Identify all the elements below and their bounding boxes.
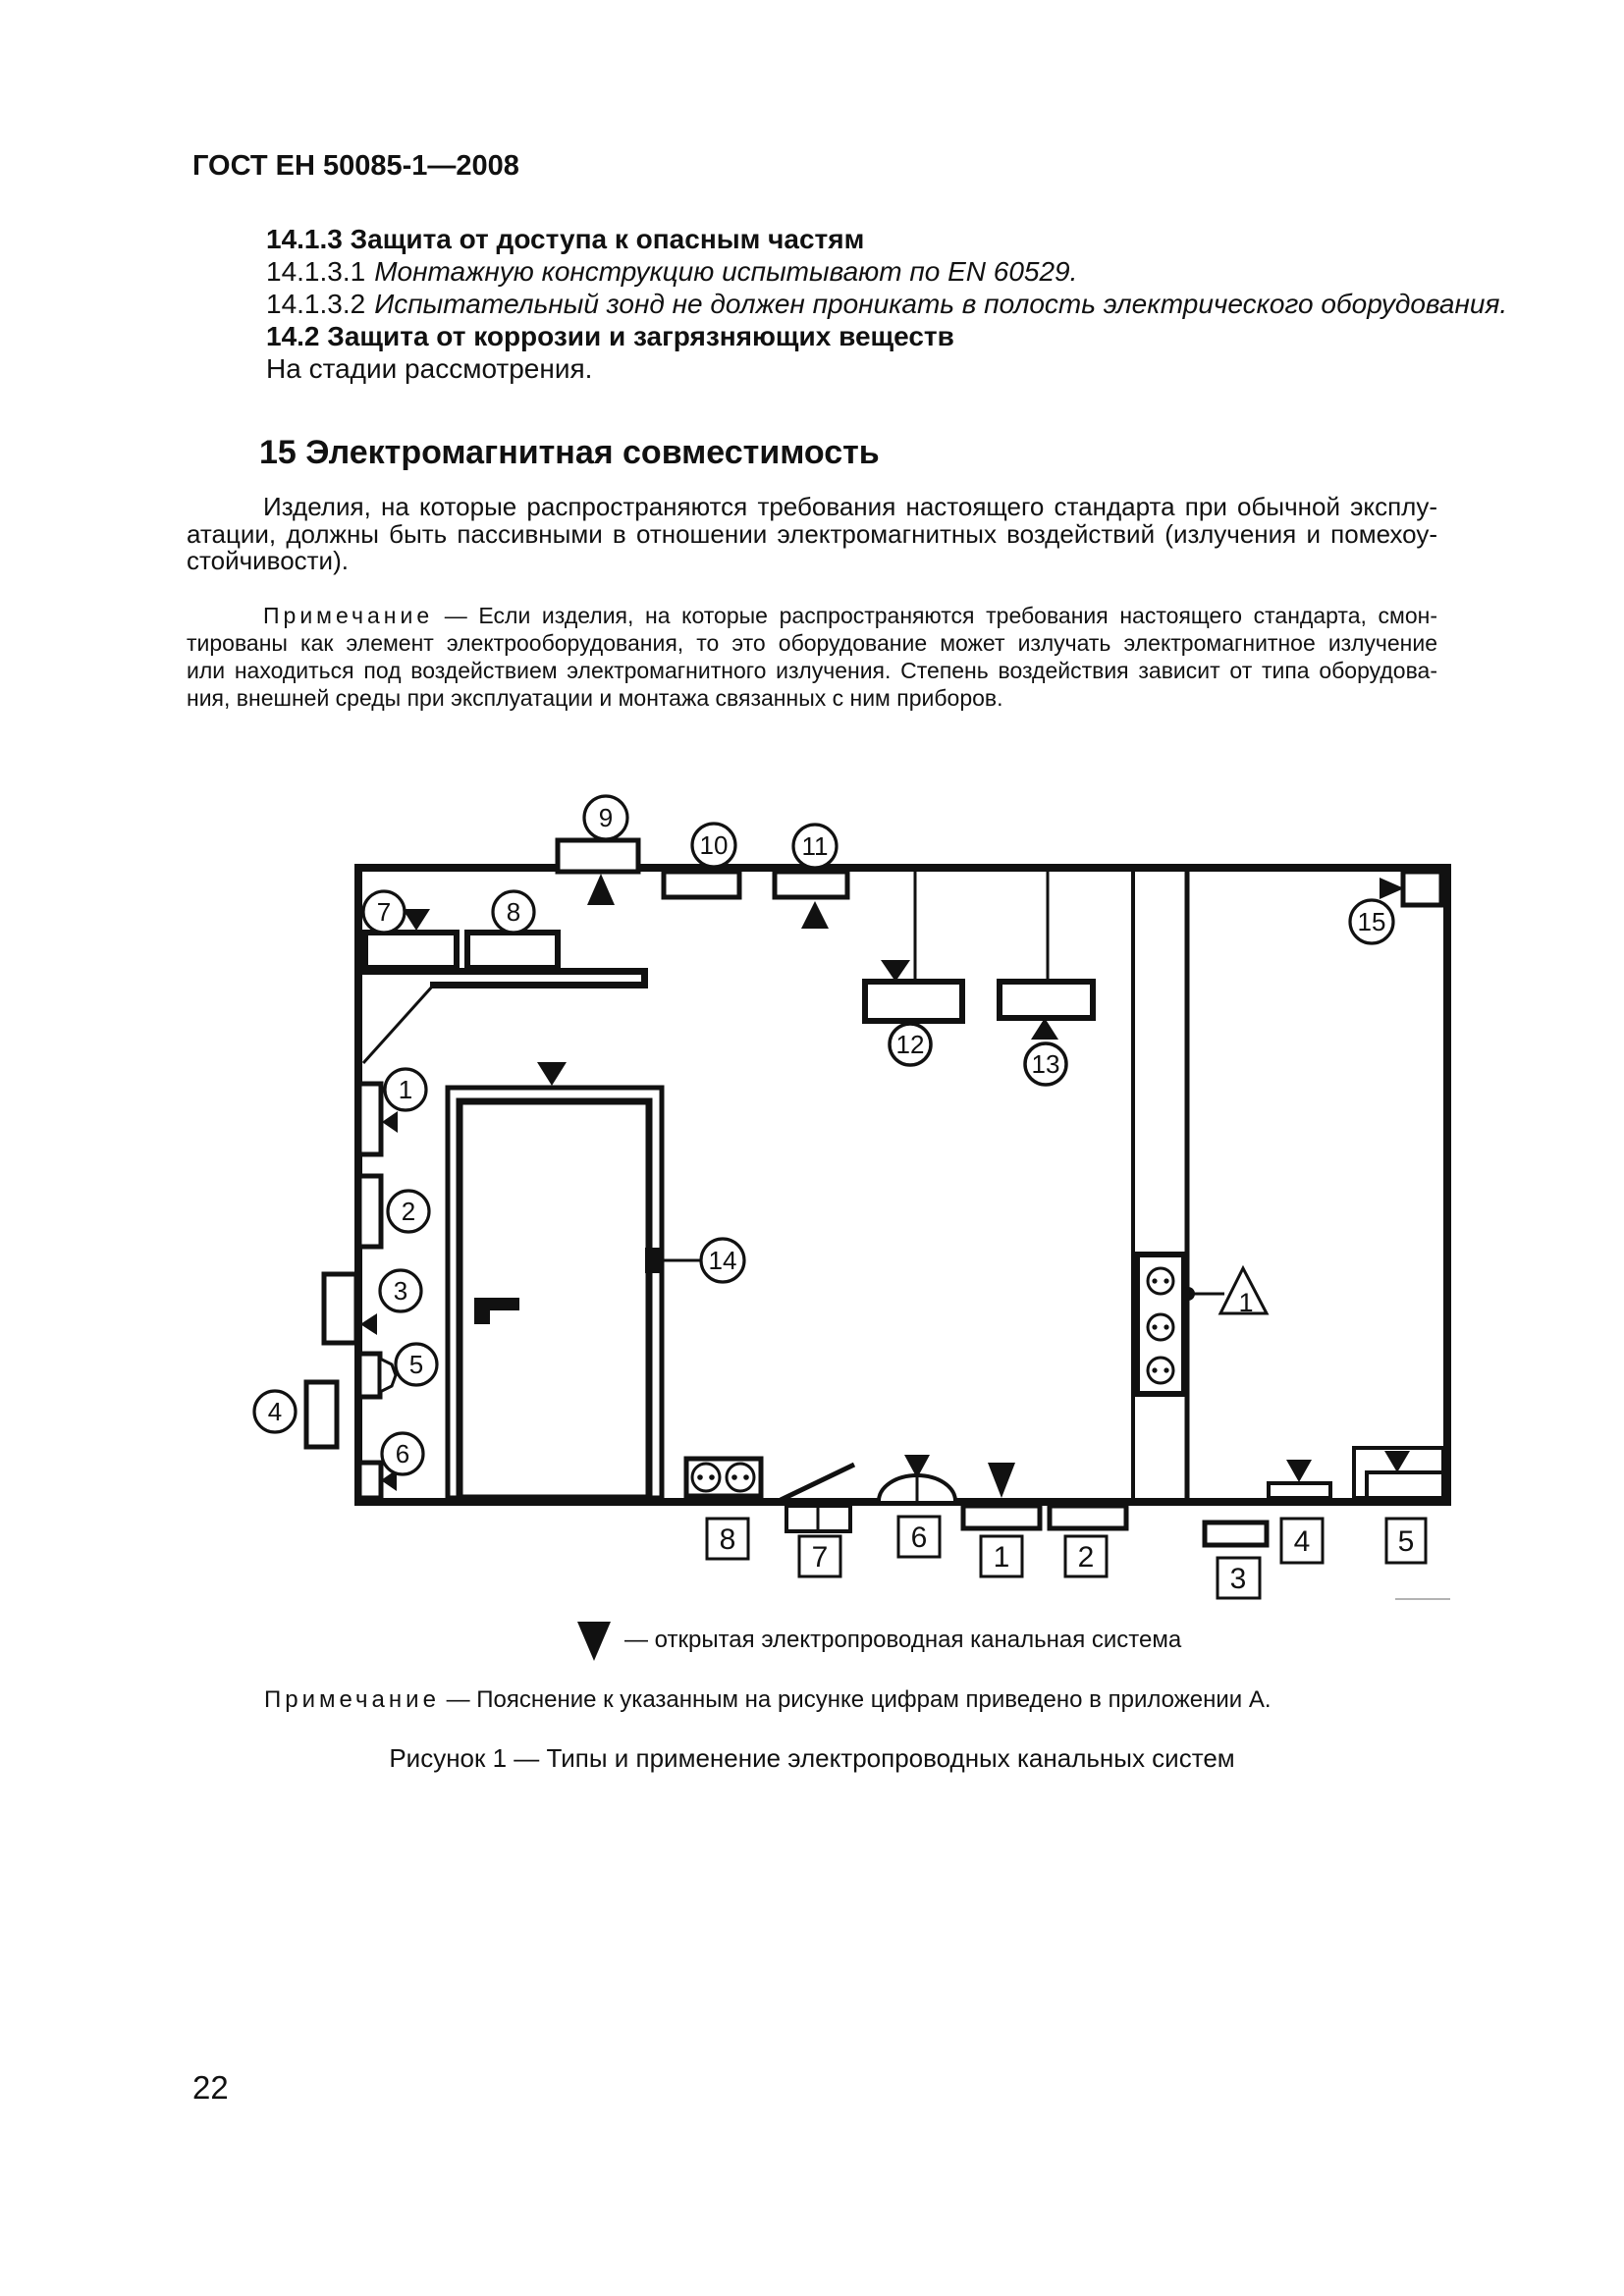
legend-open-system-triangle-icon <box>577 1622 611 1661</box>
callout-square-7: 7 <box>799 1536 840 1576</box>
callout-circle-4: 4 <box>254 1391 296 1432</box>
callout-circle-8: 8 <box>493 891 534 933</box>
callout-circle-13: 13 <box>1025 1043 1066 1085</box>
socket-icon <box>1148 1314 1173 1340</box>
callout-square-1: 1 <box>981 1536 1022 1576</box>
socket-box-leg <box>697 1494 706 1500</box>
underfloor-box-2 <box>1050 1506 1126 1528</box>
open-system-triangle-icon <box>881 960 910 982</box>
svg-text:8: 8 <box>720 1523 736 1556</box>
socket-icon <box>727 1464 754 1491</box>
socket-pin-icon <box>731 1474 737 1480</box>
socket-pin-icon <box>743 1474 749 1480</box>
socket-pin-icon <box>1164 1324 1168 1329</box>
trunking-box-8 <box>467 933 558 968</box>
page-number: 22 <box>192 2069 229 2107</box>
detached-box-4 <box>306 1382 337 1447</box>
wall-box-2 <box>359 1176 381 1247</box>
figure-1-diagram: 1 <box>0 0 1624 2296</box>
socket-pin-icon <box>1152 1367 1157 1372</box>
corner-floor-box-5-inner <box>1367 1472 1443 1498</box>
svg-text:9: 9 <box>599 803 613 832</box>
right-wall <box>1443 864 1451 1504</box>
svg-text:5: 5 <box>1398 1525 1415 1558</box>
callout-square-2: 2 <box>1065 1536 1107 1576</box>
svg-text:11: 11 <box>802 831 829 861</box>
arrow-left-icon <box>382 1111 398 1133</box>
wall-box-5 <box>359 1354 380 1397</box>
legend-text: — открытая электропроводная канальная си… <box>624 1627 1181 1654</box>
callout-circle-3: 3 <box>380 1270 421 1311</box>
figure-note-text: — Пояснение к указанным на рисунке цифра… <box>440 1686 1272 1713</box>
svg-text:2: 2 <box>402 1197 415 1226</box>
svg-text:3: 3 <box>1230 1563 1247 1595</box>
door-handle-icon <box>474 1298 519 1310</box>
socket-pin-icon <box>1164 1278 1168 1283</box>
corner-fixture-15 <box>1380 872 1441 905</box>
underfloor-bar-3 <box>1205 1522 1267 1545</box>
socket-pin-icon <box>1152 1278 1157 1283</box>
callout-square-5: 5 <box>1386 1519 1426 1563</box>
callout-circle-6: 6 <box>382 1433 423 1474</box>
svg-text:15: 15 <box>1358 907 1386 936</box>
open-system-triangle-icon <box>537 1062 567 1086</box>
socket-pin-icon <box>709 1474 715 1480</box>
open-system-triangle-icon <box>1031 1018 1058 1040</box>
socket-pin-icon <box>1152 1324 1157 1329</box>
hatch-lever-7 <box>781 1465 854 1500</box>
floor-box-4 <box>1269 1483 1330 1498</box>
svg-text:6: 6 <box>911 1522 928 1554</box>
callout-square-4: 4 <box>1281 1519 1323 1563</box>
open-system-triangle-icon <box>403 909 430 931</box>
svg-text:4: 4 <box>1294 1525 1311 1558</box>
callout-circle-12: 12 <box>890 1024 931 1065</box>
callout-circle-9: 9 <box>584 796 627 839</box>
svg-text:2: 2 <box>1078 1541 1095 1574</box>
trunking-box-10 <box>664 872 739 897</box>
pendant-fixtures <box>865 872 1093 1040</box>
svg-text:14: 14 <box>709 1246 737 1275</box>
pendant-box-12 <box>865 982 962 1021</box>
callout-square-6: 6 <box>898 1517 940 1557</box>
wall-box-6 <box>359 1463 381 1498</box>
svg-text:10: 10 <box>700 830 729 860</box>
callout-square-8: 8 <box>707 1519 748 1559</box>
arrow-left-icon <box>360 1313 377 1335</box>
callout-square-3: 3 <box>1218 1558 1260 1598</box>
shelf-front-edge <box>430 982 648 988</box>
trunking-box-11 <box>775 872 847 897</box>
svg-text:1: 1 <box>399 1075 412 1104</box>
svg-text:3: 3 <box>394 1276 407 1306</box>
arrow-right-icon <box>1380 878 1404 899</box>
open-system-triangle-icon <box>1286 1460 1312 1482</box>
callout-circle-7: 7 <box>363 891 405 933</box>
pendant-box-13 <box>1000 982 1093 1018</box>
figure-note: Примечание — Пояснение к указанным на ри… <box>264 1686 1272 1714</box>
callout-circle-5: 5 <box>396 1344 437 1385</box>
svg-text:13: 13 <box>1032 1049 1060 1079</box>
open-system-triangle-icon <box>587 874 615 905</box>
document-page: ГОСТ ЕН 50085-1—2008 14.1.3 Защита от до… <box>0 0 1624 2296</box>
trunking-box-7 <box>365 933 457 968</box>
wall-box-5-bevel <box>380 1359 396 1392</box>
open-system-triangle-icon <box>988 1463 1015 1498</box>
figure-note-label: Примечание <box>264 1686 440 1713</box>
socket-icon <box>1148 1268 1173 1294</box>
socket-box-leg <box>742 1494 751 1500</box>
svg-text:6: 6 <box>396 1439 409 1468</box>
callout-circle-1: 1 <box>385 1069 426 1110</box>
corner-box-15 <box>1403 872 1441 905</box>
callout-14-node <box>645 1248 660 1273</box>
socket-icon <box>1148 1358 1173 1383</box>
open-system-triangle-icon <box>801 901 829 929</box>
socket-pin-icon <box>1164 1367 1168 1372</box>
svg-text:5: 5 <box>409 1350 423 1379</box>
figure-caption: Рисунок 1 — Типы и применение электропро… <box>187 1743 1437 1774</box>
callout-circle-11: 11 <box>793 825 837 868</box>
svg-text:4: 4 <box>268 1397 282 1426</box>
callout-circle-14: 14 <box>701 1239 744 1282</box>
warning-triangle-label: 1 <box>1238 1288 1253 1317</box>
wall-box-1 <box>359 1084 381 1154</box>
door <box>448 1062 701 1498</box>
outside-wall-box-3 <box>324 1274 356 1343</box>
trunking-box-9 <box>558 840 638 872</box>
service-duct: 1 <box>1133 872 1267 1498</box>
socket-icon <box>692 1464 720 1491</box>
callout-circle-15: 15 <box>1350 900 1393 943</box>
svg-text:7: 7 <box>812 1541 829 1574</box>
svg-text:8: 8 <box>507 897 520 927</box>
socket-pin-icon <box>697 1474 703 1480</box>
svg-text:1: 1 <box>994 1541 1010 1574</box>
door-handle-icon <box>474 1310 490 1324</box>
underfloor-box-1 <box>963 1506 1040 1528</box>
shelf-support-line <box>363 986 433 1063</box>
callout-circle-2: 2 <box>388 1191 429 1232</box>
svg-text:12: 12 <box>896 1030 925 1059</box>
callout-circle-10: 10 <box>692 824 735 867</box>
warning-triangle-1: 1 <box>1220 1268 1267 1317</box>
ceiling-wall <box>354 864 1451 872</box>
svg-text:7: 7 <box>377 897 391 927</box>
